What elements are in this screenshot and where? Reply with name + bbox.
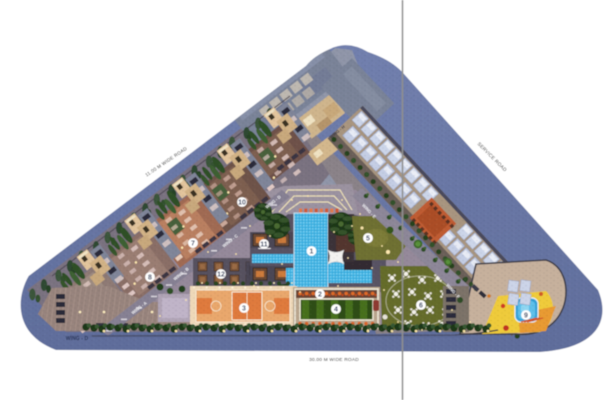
svg-text:3: 3 bbox=[242, 305, 246, 312]
svg-text:1: 1 bbox=[310, 248, 314, 255]
svg-text:30.00 M WIDE ROAD: 30.00 M WIDE ROAD bbox=[309, 357, 359, 363]
svg-text:7: 7 bbox=[191, 240, 195, 247]
svg-text:6: 6 bbox=[419, 302, 423, 309]
svg-text:9: 9 bbox=[524, 312, 528, 319]
svg-text:11: 11 bbox=[260, 241, 268, 248]
svg-text:5: 5 bbox=[366, 235, 370, 242]
svg-text:8: 8 bbox=[148, 274, 152, 281]
svg-text:WING - D: WING - D bbox=[66, 336, 89, 342]
svg-text:4: 4 bbox=[334, 306, 338, 313]
svg-text:12: 12 bbox=[217, 271, 225, 278]
svg-text:2: 2 bbox=[318, 291, 322, 298]
svg-text:10: 10 bbox=[238, 199, 246, 206]
